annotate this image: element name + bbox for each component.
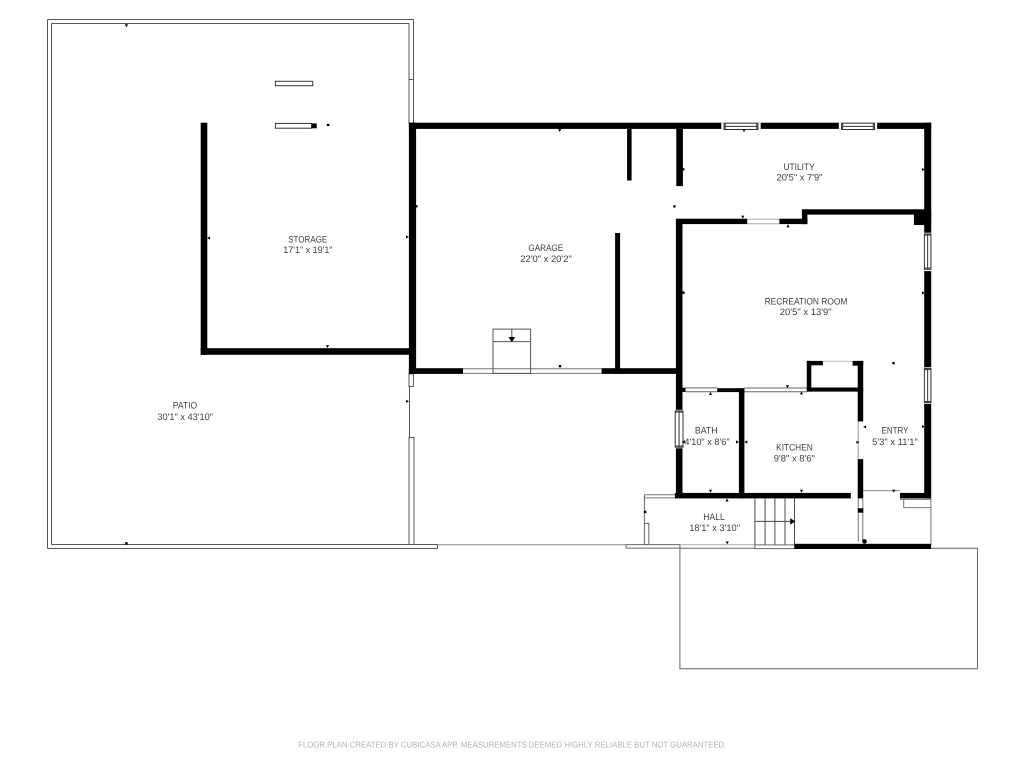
- svg-text:BATH: BATH: [695, 425, 718, 436]
- svg-text:PATIO: PATIO: [173, 399, 198, 410]
- svg-text:ENTRY: ENTRY: [882, 425, 910, 436]
- svg-text:HALL: HALL: [703, 511, 725, 522]
- svg-text:17'1" x 19'1": 17'1" x 19'1": [283, 244, 332, 255]
- svg-text:30'1" x 43'10": 30'1" x 43'10": [157, 411, 213, 422]
- svg-text:20'5" x 13'9": 20'5" x 13'9": [780, 306, 832, 317]
- svg-text:4'10" x 8'6": 4'10" x 8'6": [684, 436, 729, 447]
- svg-text:5'3" x 11'1": 5'3" x 11'1": [872, 436, 918, 447]
- svg-text:18'1" x 3'10": 18'1" x 3'10": [689, 522, 740, 533]
- svg-text:GARAGE: GARAGE: [528, 242, 563, 253]
- svg-text:22'0" x 20'2": 22'0" x 20'2": [520, 253, 572, 264]
- svg-text:UTILITY: UTILITY: [784, 161, 816, 172]
- svg-text:9'8" x 8'6": 9'8" x 8'6": [774, 452, 815, 463]
- svg-text:FLOOR PLAN CREATED BY CUBICASA: FLOOR PLAN CREATED BY CUBICASA APP. MEAS…: [298, 739, 726, 749]
- svg-text:STORAGE: STORAGE: [288, 234, 327, 245]
- svg-text:KITCHEN: KITCHEN: [776, 442, 813, 453]
- svg-text:20'5" x 7'9": 20'5" x 7'9": [777, 172, 823, 183]
- svg-text:RECREATION ROOM: RECREATION ROOM: [765, 295, 848, 306]
